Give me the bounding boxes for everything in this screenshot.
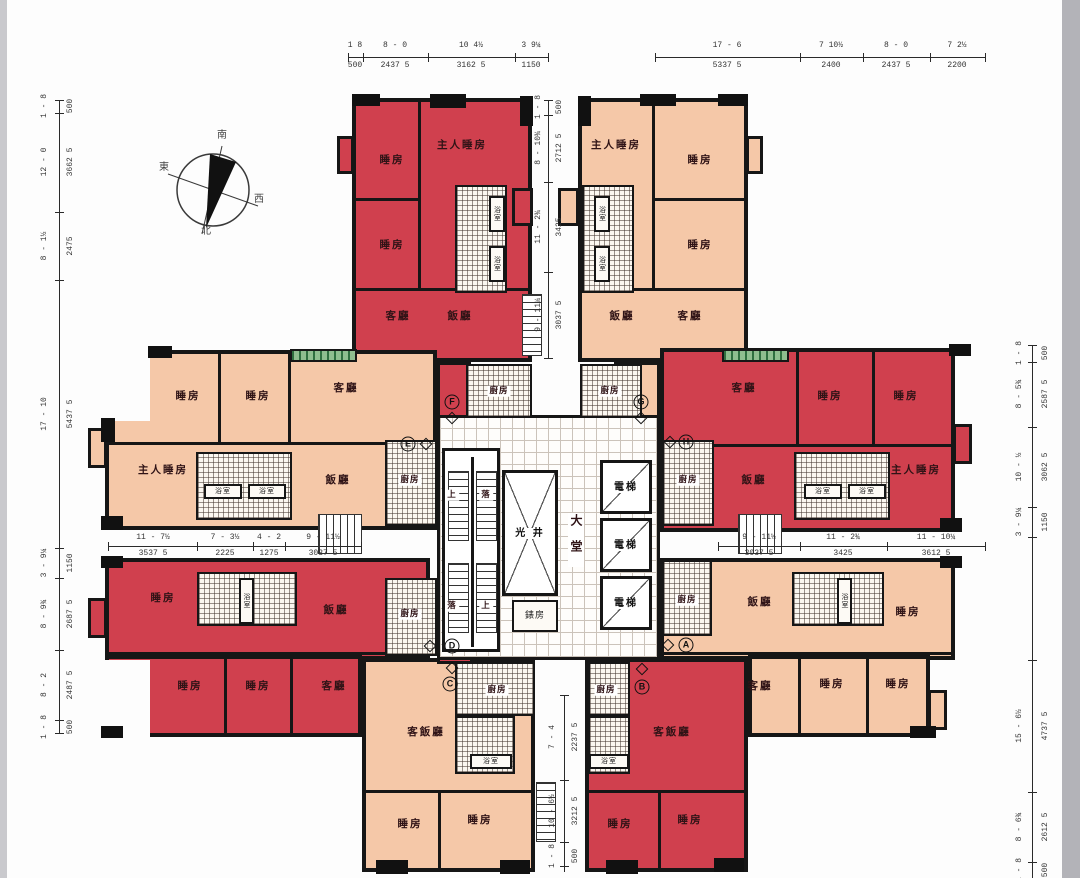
wall-column — [376, 860, 408, 874]
balcony-tab — [746, 136, 763, 174]
kitchen-label: 廚房 — [676, 475, 699, 486]
wall-column — [949, 344, 971, 356]
dim-mm: 500 — [556, 100, 564, 114]
dim-ft: 7 - 3½ — [211, 534, 240, 542]
stair-label-down: 落 — [479, 490, 493, 501]
dim-mm: 3662 5 — [67, 148, 75, 177]
dim-ft: 10 - ½ — [1016, 453, 1024, 482]
bath-label: 浴室 — [215, 488, 231, 495]
partition — [290, 655, 293, 735]
compass-east: 東 — [159, 163, 169, 173]
dim-mm: 2225 — [215, 550, 234, 558]
partition — [662, 652, 953, 655]
kitchen-label: 廚房 — [675, 595, 698, 606]
unit-letter-a: A — [679, 638, 694, 653]
compass-rose: 南 東 西 北 — [158, 128, 268, 240]
compass-needle — [206, 154, 236, 228]
wall-column — [910, 726, 936, 738]
wall-column — [520, 96, 533, 126]
dim-mm: 500 — [348, 62, 362, 70]
dim-tick — [285, 542, 286, 551]
dim-ft: 1 - 8 — [535, 95, 543, 119]
dim-tick — [887, 542, 888, 551]
bath-label: 浴室 — [259, 488, 275, 495]
partition — [107, 652, 428, 655]
room-label-master-bedroom: 主人睡房 — [437, 140, 487, 151]
dim-tick — [428, 53, 429, 62]
bath-label-box: 浴室 — [248, 484, 286, 499]
wall-column — [578, 96, 591, 126]
wall-column — [606, 860, 638, 874]
room-label-bedroom: 睡房 — [380, 240, 405, 251]
partition — [652, 102, 655, 290]
dim-tick — [1028, 660, 1037, 661]
partition — [798, 655, 801, 735]
dim-tick — [55, 650, 64, 651]
partition — [364, 790, 534, 793]
stair-block — [442, 448, 500, 652]
wall-column — [101, 418, 115, 442]
room-label-bedroom: 睡房 — [688, 155, 713, 166]
dim-tick — [515, 53, 516, 62]
dim-tick — [863, 53, 864, 62]
dim-mm: 500 — [67, 720, 75, 734]
dim-tick — [363, 53, 364, 62]
dim-mm: 2237 5 — [572, 723, 580, 752]
room-label-living: 客廳 — [334, 383, 359, 394]
dim-tick — [560, 842, 569, 843]
room-label-bedroom: 睡房 — [678, 815, 703, 826]
dim-mm: 3162 5 — [457, 62, 486, 70]
bath-label: 浴室 — [601, 758, 617, 765]
bath-label: 浴室 — [599, 256, 606, 272]
dim-tick — [548, 53, 549, 62]
bath-label: 浴室 — [483, 758, 499, 765]
bath-label-box: 浴室 — [594, 246, 610, 282]
dim-ft: 1 - 8 — [1016, 858, 1024, 878]
room-label-living: 客廳 — [732, 383, 757, 394]
room-label-bedroom: 睡房 — [820, 679, 845, 690]
bath-label: 浴室 — [243, 593, 250, 609]
dim-tick — [544, 272, 553, 273]
dim-mm: 3062 5 — [1042, 453, 1050, 482]
partition — [218, 352, 221, 444]
dim-ft: 17 - 6 — [713, 42, 742, 50]
dim-ft: 1 - 8 — [549, 844, 557, 868]
dim-mm: 2437 5 — [882, 62, 911, 70]
bath-label-box: 浴室 — [804, 484, 842, 499]
wall-column — [101, 556, 123, 568]
room-label-dining: 飯廳 — [610, 311, 635, 322]
partition — [438, 792, 441, 870]
room-label-bedroom: 睡房 — [818, 391, 843, 402]
dim-mm: 2712 5 — [556, 134, 564, 163]
kitchen-label: 廚房 — [485, 685, 508, 696]
dim-tick — [718, 542, 719, 551]
partition — [796, 350, 799, 446]
scan-edge-right — [1062, 0, 1080, 878]
dim-line — [348, 57, 548, 58]
dim-mm: 3037 5 — [745, 550, 774, 558]
dim-ft: 1 - 8 — [41, 94, 49, 118]
unit-letter-e: E — [401, 437, 416, 452]
dim-tick — [985, 53, 986, 62]
balcony-tab — [512, 188, 533, 226]
planter — [290, 349, 357, 362]
bath-label-box: 浴室 — [489, 196, 505, 232]
bath-label: 浴室 — [841, 593, 848, 609]
dim-ft: 8 - 9¾ — [41, 600, 49, 629]
elevator-label: 電梯 — [613, 598, 639, 609]
elevator-label: 電梯 — [613, 482, 639, 493]
dim-mm: 3425 — [833, 550, 852, 558]
stair-label-up: 上 — [445, 490, 459, 501]
dim-tick — [55, 212, 64, 213]
elevator-label: 電梯 — [613, 540, 639, 551]
dim-ft: 9 - 11½ — [306, 534, 340, 542]
dim-ft: 8 - 5¾ — [1016, 380, 1024, 409]
dim-mm: 2437 5 — [381, 62, 410, 70]
bath-label: 浴室 — [599, 206, 606, 222]
room-label-bedroom: 睡房 — [176, 391, 201, 402]
kitchen-label: 廚房 — [398, 609, 421, 620]
compass-north: 北 — [201, 227, 211, 237]
kitchen-label: 廚房 — [487, 386, 510, 397]
dim-line — [655, 57, 985, 58]
floor-plan: 上 落 落 上 光 井 錶房 大堂 電梯 電梯 電梯 浴室 浴 — [0, 0, 1080, 878]
unit-letter-d: D — [445, 639, 460, 654]
dim-mm: 3037 5 — [556, 301, 564, 330]
dim-ft: 8 - 0 — [383, 42, 407, 50]
dim-ft: 11 - 7½ — [136, 534, 170, 542]
dim-ft: 8 - 6¾ — [1016, 813, 1024, 842]
room-label-living-dining: 客飯廳 — [407, 727, 445, 738]
dim-tick — [55, 733, 64, 734]
dim-tick — [55, 578, 64, 579]
dim-tick — [1028, 862, 1037, 863]
stair-label-up: 上 — [479, 601, 493, 612]
dim-mm: 5337 5 — [713, 62, 742, 70]
dim-mm: 5437 5 — [67, 400, 75, 429]
dim-mm: 3212 5 — [572, 797, 580, 826]
meter-room-label: 錶房 — [525, 612, 545, 621]
partition — [418, 102, 421, 290]
stair-divider — [471, 457, 474, 647]
dim-mm: 1150 — [1042, 512, 1050, 531]
room-label-bedroom: 睡房 — [896, 607, 921, 618]
dim-tick — [1028, 537, 1037, 538]
dim-mm: 1275 — [259, 550, 278, 558]
wall-column — [148, 346, 172, 358]
dim-ft: 4 - 2 — [257, 534, 281, 542]
compass-graphic — [158, 128, 268, 240]
room-label-bedroom: 睡房 — [468, 815, 493, 826]
dim-tick — [544, 115, 553, 116]
dim-tick — [108, 542, 109, 551]
bath-label-box: 浴室 — [848, 484, 886, 499]
partition — [587, 790, 746, 793]
room-label-living: 客廳 — [748, 681, 773, 692]
balcony-tab — [337, 136, 354, 174]
dim-tick — [1028, 362, 1037, 363]
bath-label-box: 浴室 — [239, 578, 254, 624]
dim-mm: 2587 5 — [1042, 380, 1050, 409]
bath-label-box: 浴室 — [489, 246, 505, 282]
bath-label: 浴室 — [494, 206, 501, 222]
dim-line — [59, 100, 60, 733]
room-label-master-bedroom: 主人睡房 — [591, 140, 641, 151]
dim-mm: 2400 — [821, 62, 840, 70]
bath-label-box: 浴室 — [837, 578, 852, 624]
dim-tick — [544, 100, 553, 101]
dim-tick — [544, 182, 553, 183]
room-label-bedroom: 睡房 — [178, 681, 203, 692]
stair-flight — [448, 471, 469, 541]
dim-ft: 8 - 1½ — [41, 232, 49, 261]
dim-line — [108, 546, 361, 547]
room-label-living: 客廳 — [386, 311, 411, 322]
wall-column — [101, 516, 123, 530]
dim-mm: 3425 — [556, 217, 564, 236]
dim-ft: 10 4½ — [459, 42, 483, 50]
dim-ft: 11 - 2¾ — [826, 534, 860, 542]
dim-mm: 3612 5 — [922, 550, 951, 558]
dim-ft: 3 - 9¼ — [41, 549, 49, 578]
unit-letter-c: C — [443, 677, 458, 692]
dim-ft: 1 - 8 — [41, 715, 49, 739]
balcony-tab — [928, 690, 947, 730]
dim-mm: 2612 5 — [1042, 813, 1050, 842]
dim-tick — [930, 53, 931, 62]
dim-ft: 7 10½ — [819, 42, 843, 50]
dim-ft: 8 - 10¾ — [535, 131, 543, 165]
stair-flight — [476, 563, 497, 633]
unit-letter-f: F — [445, 395, 460, 410]
stair-label-down: 落 — [445, 601, 459, 612]
room-label-bedroom: 睡房 — [886, 679, 911, 690]
lobby-label: 大堂 — [568, 513, 584, 567]
dim-tick — [55, 720, 64, 721]
kitchen-label: 廚房 — [594, 685, 617, 696]
wall-column — [714, 858, 744, 872]
unit-a-block-lower — [748, 655, 930, 737]
dim-mm: 2200 — [947, 62, 966, 70]
dim-tick — [1028, 345, 1037, 346]
room-label-bedroom: 睡房 — [398, 819, 423, 830]
dim-tick — [544, 358, 553, 359]
dim-ft: 8 - 2 — [41, 673, 49, 697]
notch — [101, 346, 150, 421]
wall-column — [430, 94, 466, 108]
compass-west: 西 — [254, 195, 264, 205]
dim-mm: 500 — [572, 849, 580, 863]
dim-mm: 2475 — [67, 236, 75, 255]
dim-ft: 15 - 6½ — [1016, 709, 1024, 743]
dim-mm: 500 — [1042, 863, 1050, 877]
dim-tick — [655, 53, 656, 62]
dim-ft: 11 - 2¾ — [535, 210, 543, 244]
wall-column — [352, 94, 380, 106]
partition — [652, 198, 748, 201]
room-label-bedroom: 睡房 — [246, 391, 271, 402]
dim-mm: 500 — [67, 99, 75, 113]
bath-label-box: 浴室 — [589, 754, 629, 769]
dim-tick — [55, 280, 64, 281]
dim-line — [548, 100, 549, 358]
bath-label-box: 浴室 — [594, 196, 610, 232]
unit-letter-g: G — [634, 395, 649, 410]
balcony-tab — [88, 598, 107, 638]
room-label-bedroom: 睡房 — [151, 593, 176, 604]
scan-edge-left — [0, 0, 7, 878]
room-label-dining: 飯廳 — [742, 475, 767, 486]
room-label-bedroom: 睡房 — [246, 681, 271, 692]
dim-ft: 1 - 8 — [1016, 341, 1024, 365]
light-well-label: 光 井 — [514, 528, 545, 539]
dim-ft: 8 - 0 — [884, 42, 908, 50]
elevator-cell: 電梯 — [600, 518, 652, 572]
room-label-bedroom: 睡房 — [894, 391, 919, 402]
dim-ft: 7 2½ — [947, 42, 966, 50]
dim-line — [1032, 345, 1033, 878]
room-label-bedroom: 睡房 — [608, 819, 633, 830]
dim-tick — [1028, 507, 1037, 508]
bath-label: 浴室 — [859, 488, 875, 495]
room-label-dining: 飯廳 — [748, 597, 773, 608]
wall-column — [101, 726, 123, 738]
dim-ft: 7 - 4 — [549, 725, 557, 749]
bath-label: 浴室 — [494, 256, 501, 272]
dim-tick — [800, 542, 801, 551]
dim-tick — [800, 53, 801, 62]
dim-tick — [253, 542, 254, 551]
wall-column — [640, 94, 676, 106]
room-label-master-bedroom: 主人睡房 — [138, 465, 188, 476]
partition — [866, 655, 869, 735]
room-label-living: 客廳 — [322, 681, 347, 692]
meter-room: 錶房 — [512, 600, 558, 632]
dim-mm: 4737 5 — [1042, 712, 1050, 741]
stair-flight — [476, 471, 497, 541]
unit-letter-b: B — [635, 680, 650, 695]
room-label-bedroom: 睡房 — [688, 240, 713, 251]
unit-letter-h: H — [679, 435, 694, 450]
partition — [658, 792, 661, 870]
partition — [224, 655, 227, 735]
dim-ft: 9 - 11½ — [742, 534, 776, 542]
elevator-cell: 電梯 — [600, 576, 652, 630]
dim-tick — [55, 100, 64, 101]
dim-ft: 11 - 10¼ — [917, 534, 955, 542]
dim-mm: 1150 — [521, 62, 540, 70]
room-label-bedroom: 睡房 — [380, 155, 405, 166]
bath-label-box: 浴室 — [470, 754, 512, 769]
dim-ft: 3 - 9¼ — [1016, 508, 1024, 537]
dim-tick — [1028, 427, 1037, 428]
dim-line — [718, 546, 985, 547]
wall-column — [940, 518, 962, 532]
dim-ft: 12 - 0 — [41, 148, 49, 177]
dim-ft: 9 - 11¼ — [535, 298, 543, 332]
dim-ft: 10 - 6½ — [549, 794, 557, 828]
kitchen-label: 廚房 — [598, 386, 621, 397]
room-label-dining: 飯廳 — [326, 475, 351, 486]
dim-tick — [197, 542, 198, 551]
dim-tick — [55, 548, 64, 549]
bath-label-box: 浴室 — [204, 484, 242, 499]
bath-label: 浴室 — [815, 488, 831, 495]
dim-tick — [55, 113, 64, 114]
partition — [872, 350, 875, 446]
dim-mm: 2487 5 — [67, 671, 75, 700]
dim-mm: 3037 5 — [309, 550, 338, 558]
dim-tick — [560, 780, 569, 781]
room-label-living-dining: 客飯廳 — [653, 727, 691, 738]
kitchen-label: 廚房 — [398, 475, 421, 486]
wall-column — [718, 94, 748, 106]
dim-tick — [1028, 792, 1037, 793]
dim-mm: 3537 5 — [139, 550, 168, 558]
partition — [288, 352, 291, 444]
dim-tick — [361, 542, 362, 551]
dim-mm: 500 — [1042, 346, 1050, 360]
stair-flight — [448, 563, 469, 633]
dim-mm: 2687 5 — [67, 600, 75, 629]
wall-column — [500, 860, 530, 874]
compass-south: 南 — [217, 131, 227, 141]
room-label-master-bedroom: 主人睡房 — [891, 465, 941, 476]
light-well: 光 井 — [502, 470, 558, 596]
dim-tick — [985, 542, 986, 551]
partition — [352, 198, 420, 201]
elevator-cell: 電梯 — [600, 460, 652, 514]
dim-tick — [560, 695, 569, 696]
room-label-dining: 飯廳 — [448, 311, 473, 322]
planter — [722, 349, 789, 362]
dim-mm: 1150 — [67, 553, 75, 572]
dim-line — [564, 695, 565, 872]
balcony-tab — [953, 424, 972, 464]
room-label-living: 客廳 — [678, 311, 703, 322]
dim-ft: 17 - 10 — [41, 397, 49, 431]
dim-ft: 1 8 — [348, 42, 362, 50]
dim-tick — [560, 866, 569, 867]
dim-ft: 3 9¼ — [521, 42, 540, 50]
room-label-dining: 飯廳 — [324, 605, 349, 616]
